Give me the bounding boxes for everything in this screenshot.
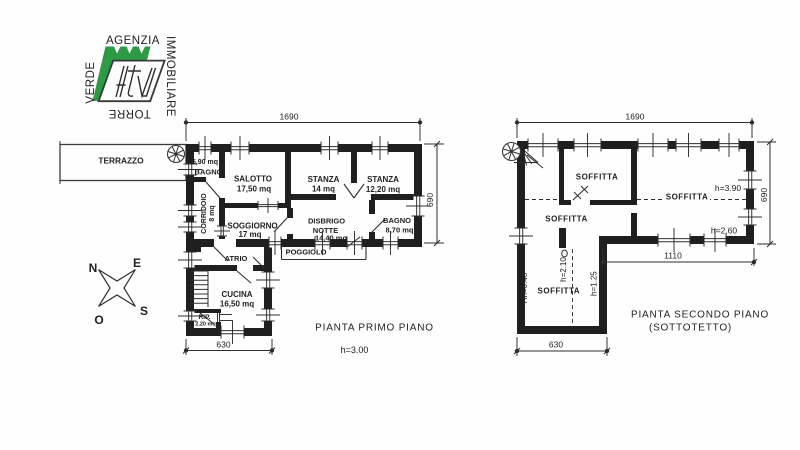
svg-text:POGGIOLO: POGGIOLO: [286, 248, 327, 257]
svg-text:17,50 mq: 17,50 mq: [237, 185, 271, 194]
svg-text:SOFFITTA: SOFFITTA: [666, 193, 709, 202]
svg-text:N: N: [89, 261, 98, 275]
svg-text:1110: 1110: [664, 251, 682, 261]
svg-text:Hh=0.43: Hh=0.43: [520, 272, 529, 303]
svg-text:DISBRIGO: DISBRIGO: [308, 217, 345, 226]
svg-text:SALOTTO: SALOTTO: [234, 175, 272, 184]
svg-text:16,50 mq: 16,50 mq: [220, 300, 254, 309]
svg-text:h=1.25: h=1.25: [590, 271, 599, 296]
svg-text:SOFFITTA: SOFFITTA: [538, 287, 581, 296]
svg-text:STANZA: STANZA: [367, 175, 399, 184]
svg-text:BAGNO: BAGNO: [383, 216, 411, 225]
svg-text:690: 690: [759, 188, 769, 202]
svg-text:1690: 1690: [280, 112, 299, 122]
svg-text:630: 630: [216, 340, 230, 350]
svg-text:h=3.90: h=3.90: [715, 183, 742, 193]
svg-text:S: S: [140, 304, 148, 318]
svg-text:(SOTTOTETTO): (SOTTOTETTO): [649, 323, 732, 334]
svg-text:E: E: [133, 256, 141, 270]
svg-text:14,40 mq: 14,40 mq: [315, 234, 348, 243]
svg-text:STANZA: STANZA: [308, 175, 340, 184]
svg-text:CORRIDOIO: CORRIDOIO: [201, 193, 208, 234]
svg-text:PIANTA PRIMO PIANO: PIANTA PRIMO PIANO: [315, 323, 434, 334]
svg-text:VERDE: VERDE: [85, 61, 97, 103]
svg-text:BAGNO: BAGNO: [195, 168, 223, 177]
svg-text:8,70 mq: 8,70 mq: [386, 226, 414, 235]
svg-text:TORRE: TORRE: [108, 107, 151, 119]
svg-text:TERRAZZO: TERRAZZO: [98, 156, 144, 166]
svg-text:8 mq: 8 mq: [209, 205, 216, 221]
svg-text:17 mq: 17 mq: [238, 230, 261, 239]
svg-text:CUCINA: CUCINA: [221, 290, 252, 299]
svg-text:IMMOBILIARE: IMMOBILIARE: [164, 36, 176, 117]
svg-text:O: O: [94, 313, 103, 327]
svg-text:h=3.00: h=3.00: [341, 345, 369, 355]
svg-text:PIANTA SECONDO PIANO: PIANTA SECONDO PIANO: [631, 310, 769, 321]
svg-text:h=2.10: h=2.10: [559, 257, 568, 282]
svg-text:AGENZIA: AGENZIA: [106, 35, 160, 47]
svg-text:12,20 mq: 12,20 mq: [366, 185, 400, 194]
svg-text:SOFFITTA: SOFFITTA: [545, 215, 588, 224]
svg-text:ATRIO: ATRIO: [225, 254, 248, 263]
svg-text:SOFFITTA: SOFFITTA: [576, 173, 619, 182]
svg-text:1690: 1690: [626, 112, 645, 122]
svg-text:h=2.60: h=2.60: [711, 226, 738, 236]
svg-text:RIP.: RIP.: [199, 314, 211, 321]
svg-text:2,20 mq: 2,20 mq: [195, 322, 215, 328]
svg-text:5,90 mq: 5,90 mq: [192, 159, 218, 166]
svg-text:690: 690: [425, 193, 435, 207]
svg-text:14 mq: 14 mq: [312, 185, 335, 194]
svg-text:630: 630: [549, 340, 563, 350]
